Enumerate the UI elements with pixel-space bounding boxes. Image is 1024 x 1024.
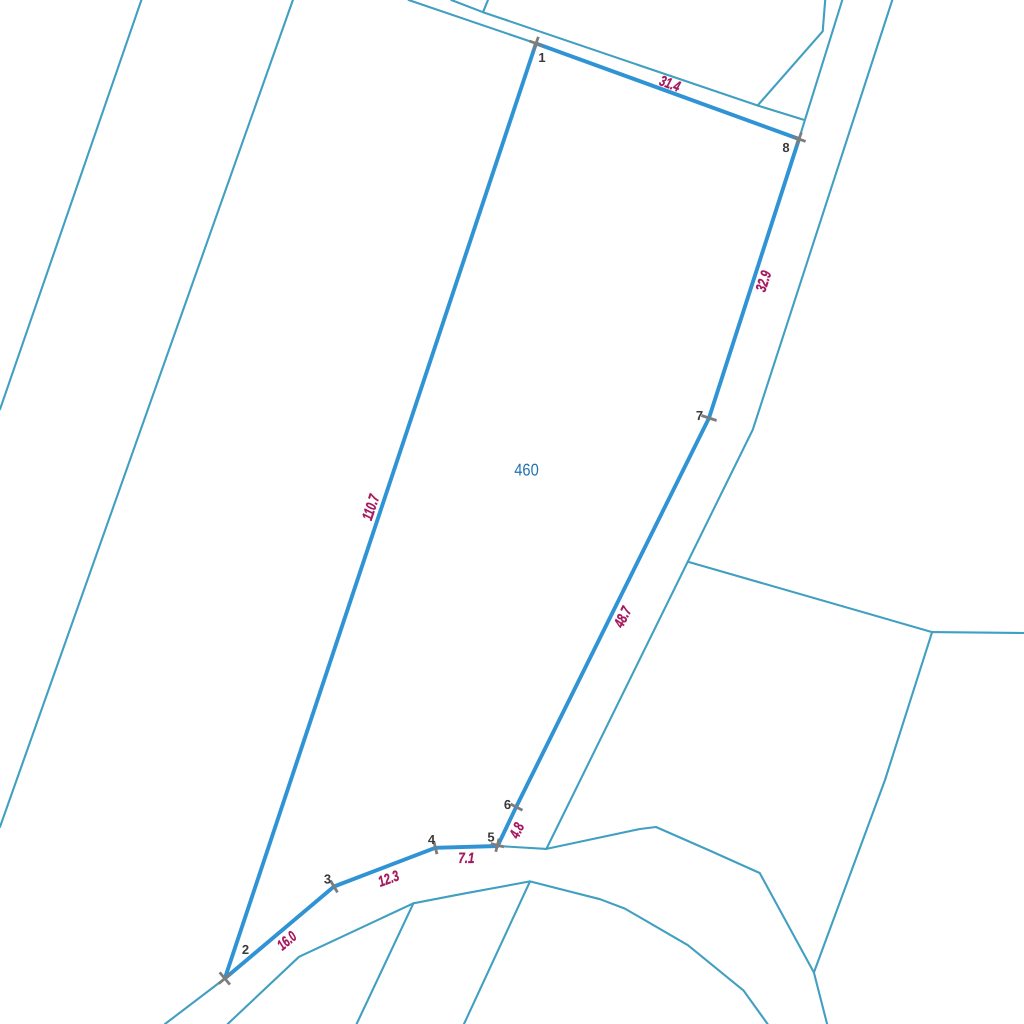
svg-text:5: 5 <box>487 830 494 845</box>
svg-text:4: 4 <box>428 832 436 847</box>
svg-text:7: 7 <box>696 408 703 423</box>
svg-text:2: 2 <box>242 942 249 957</box>
svg-text:1: 1 <box>538 50 545 65</box>
svg-text:6: 6 <box>504 797 511 812</box>
svg-text:7.1: 7.1 <box>458 850 474 867</box>
svg-text:3: 3 <box>324 872 331 887</box>
svg-text:8: 8 <box>782 140 789 155</box>
svg-text:460: 460 <box>514 460 539 479</box>
